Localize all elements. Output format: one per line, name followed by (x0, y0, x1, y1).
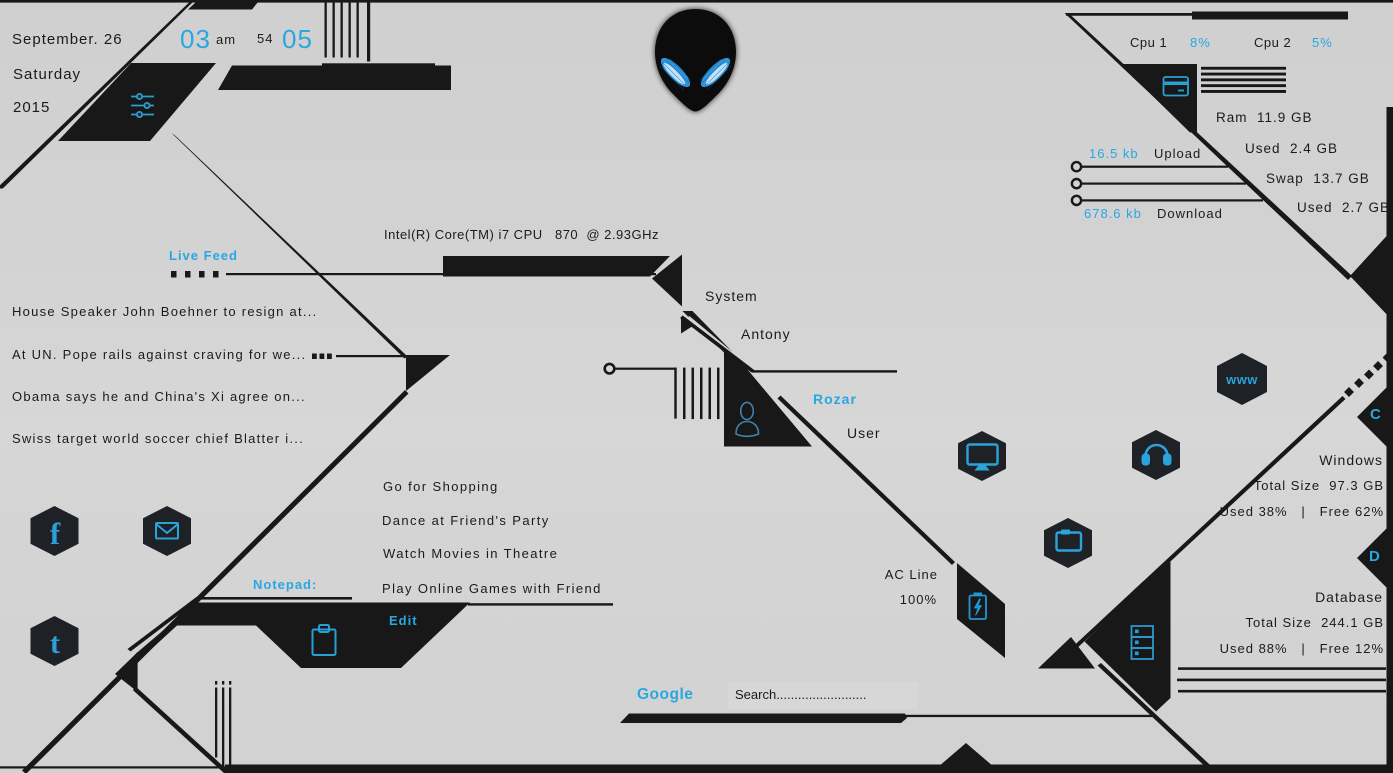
svg-text:f: f (50, 516, 61, 551)
svg-text:www: www (1225, 372, 1258, 387)
svg-text:t: t (50, 627, 60, 660)
